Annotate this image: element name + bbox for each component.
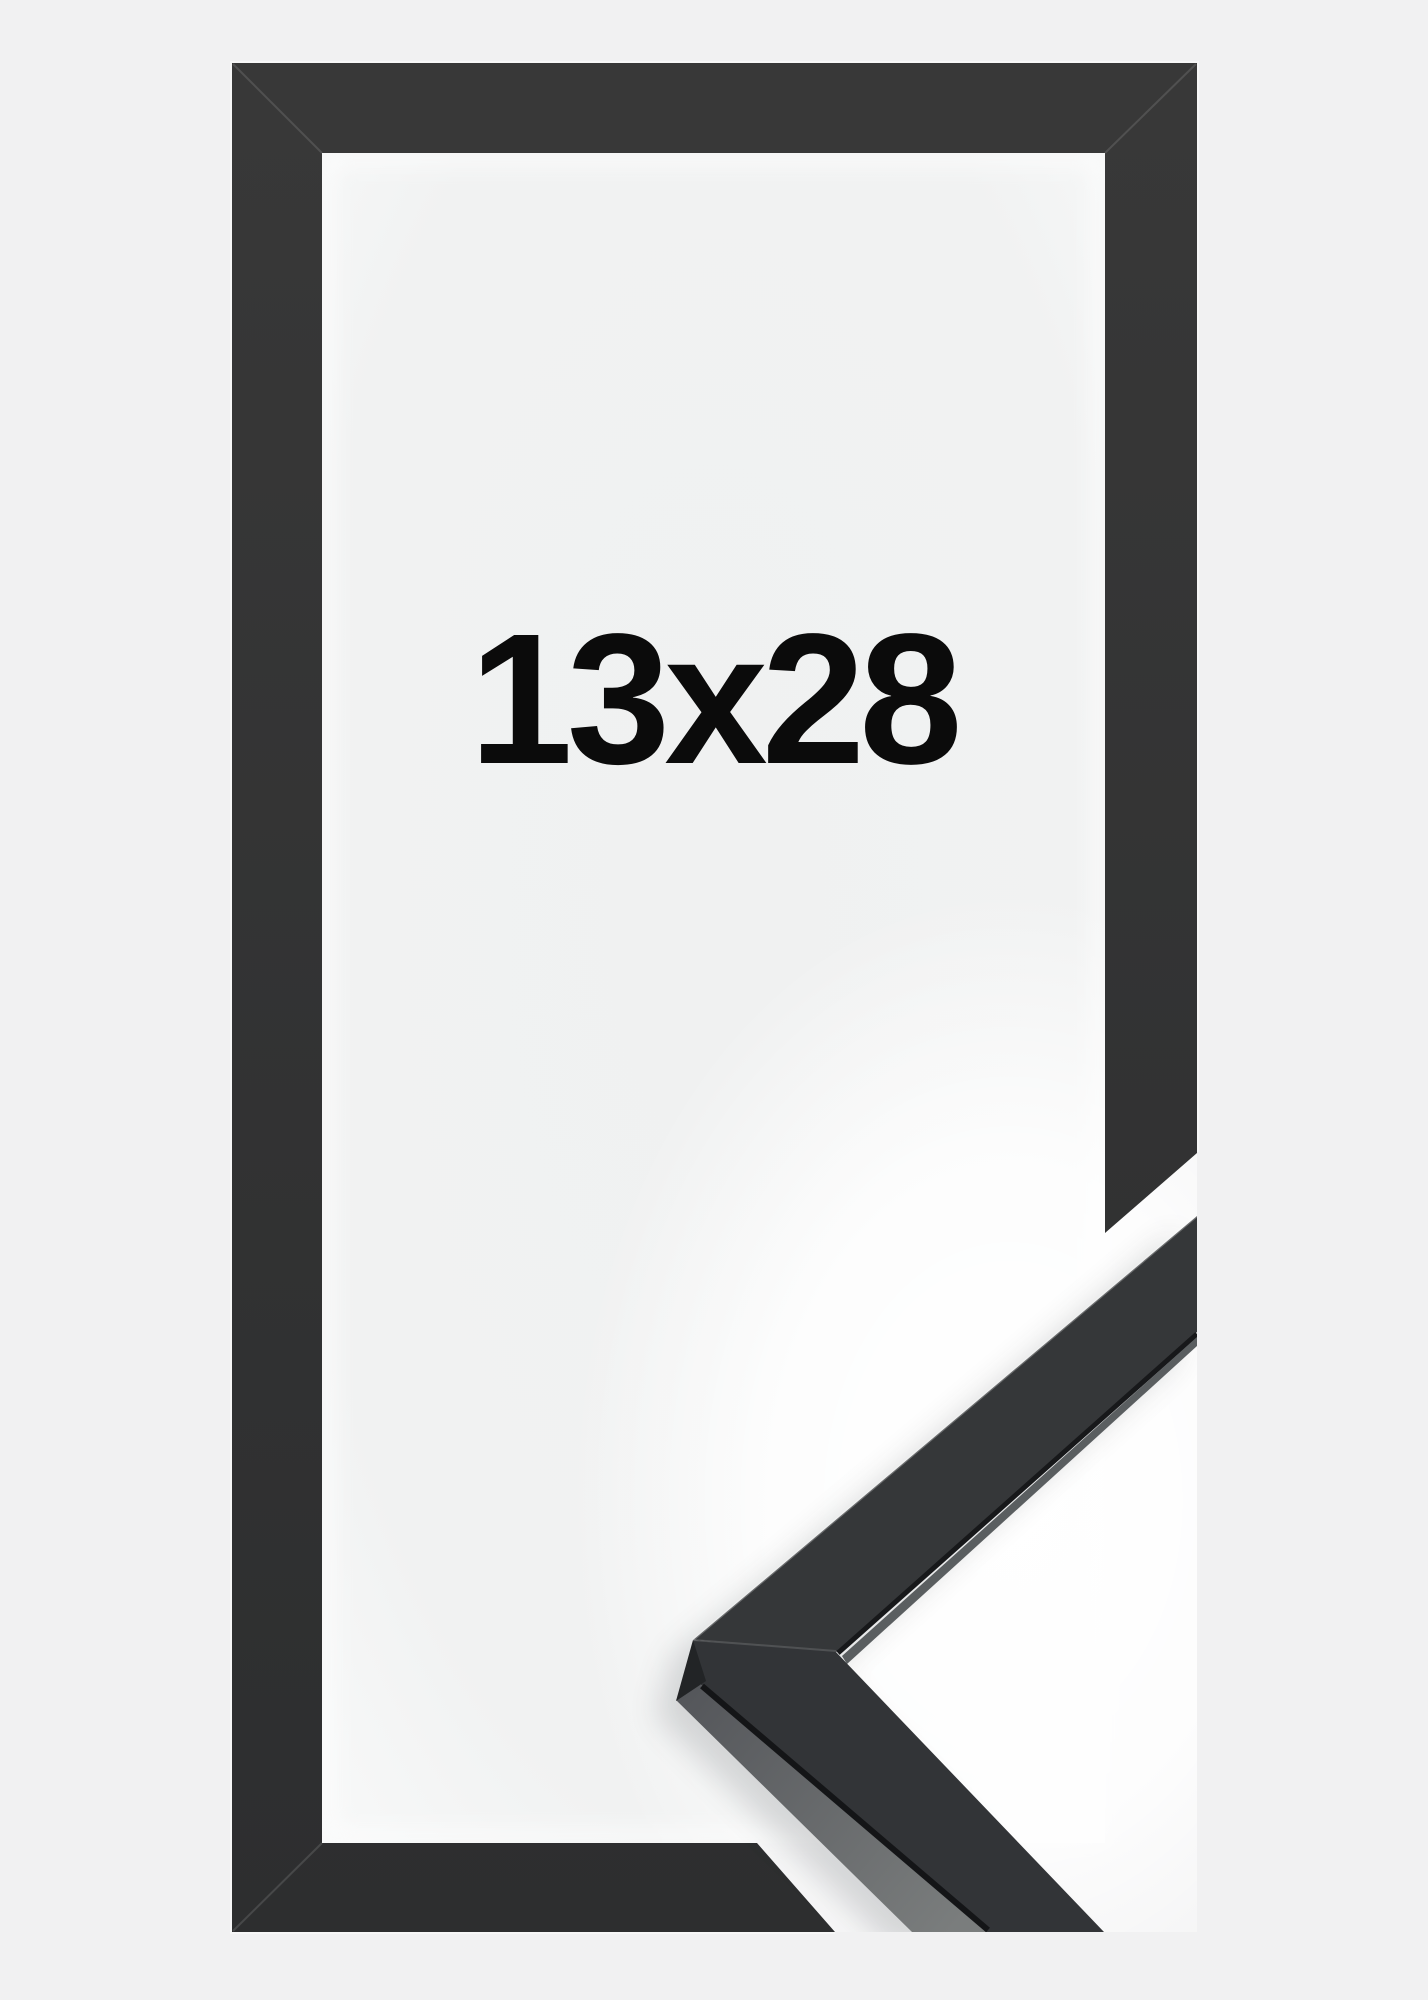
- size-label: 13x28: [469, 596, 957, 803]
- product-photo: 13x28: [0, 0, 1428, 2000]
- frame-product-image: 13x28: [0, 0, 1428, 2000]
